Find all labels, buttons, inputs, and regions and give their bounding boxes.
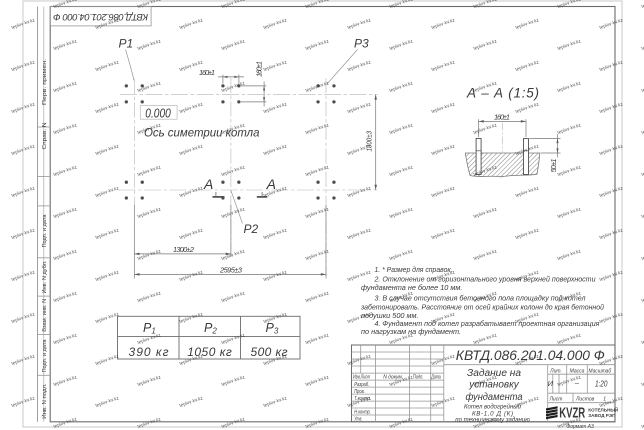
svg-text:Изм.Лист: Изм.Лист xyxy=(353,375,370,381)
svg-text:160±1: 160±1 xyxy=(199,68,215,77)
svg-text:P3: P3 xyxy=(354,37,369,51)
svg-text:Формат А3: Формат А3 xyxy=(566,424,594,430)
svg-text:160±1: 160±1 xyxy=(255,61,264,77)
svg-text:Подп.: Подп. xyxy=(413,375,424,381)
svg-text:ЗАВОД РЭП: ЗАВОД РЭП xyxy=(588,413,615,418)
svg-text:0.000: 0.000 xyxy=(145,107,171,121)
svg-text:Утв.: Утв. xyxy=(354,417,363,423)
svg-text:1300±2: 1300±2 xyxy=(173,245,194,254)
svg-text:Справ. N: Справ. N xyxy=(42,123,48,150)
svg-text:Лист: Лист xyxy=(549,396,563,402)
svg-text:КВТД.086.201.04.000 Ф: КВТД.086.201.04.000 Ф xyxy=(53,11,148,22)
svg-text:P1: P1 xyxy=(119,37,134,51)
svg-text:Дата: Дата xyxy=(431,375,441,381)
svg-text:Перв. примен.: Перв. примен. xyxy=(42,59,48,105)
svg-text:Лит.: Лит. xyxy=(549,369,562,375)
svg-text:Разраб.: Разраб. xyxy=(354,382,369,388)
svg-text:А: А xyxy=(203,176,213,192)
svg-text:P2: P2 xyxy=(244,222,259,236)
svg-text:Взам. инв. N: Взам. инв. N xyxy=(42,299,48,332)
svg-text:Инв. N дубл.: Инв. N дубл. xyxy=(42,260,48,293)
svg-text:1:20: 1:20 xyxy=(595,379,608,388)
svg-text:Масштаб: Масштаб xyxy=(589,369,612,375)
svg-text:забетонировать. Расстояние от: забетонировать. Расстояние от осей крайн… xyxy=(360,302,604,311)
svg-text:Пров.: Пров. xyxy=(354,389,365,395)
svg-text:2595±3: 2595±3 xyxy=(219,266,243,275)
svg-text:фундамента: фундамента xyxy=(466,391,523,403)
svg-text:Листов: Листов xyxy=(575,396,595,402)
svg-text:390 кг: 390 кг xyxy=(129,345,169,359)
svg-text:50±1: 50±1 xyxy=(549,159,558,173)
svg-text:160±1: 160±1 xyxy=(494,113,510,122)
svg-text:Подп. и дата: Подп. и дата xyxy=(42,214,48,248)
svg-text:Масса: Масса xyxy=(570,369,585,375)
svg-text:Подп. и дата: Подп. и дата xyxy=(42,339,48,373)
svg-text:Инв. N подл.: Инв. N подл. xyxy=(42,383,48,419)
svg-text:Н.контр.: Н.контр. xyxy=(354,410,371,416)
svg-text:И: И xyxy=(548,379,554,388)
